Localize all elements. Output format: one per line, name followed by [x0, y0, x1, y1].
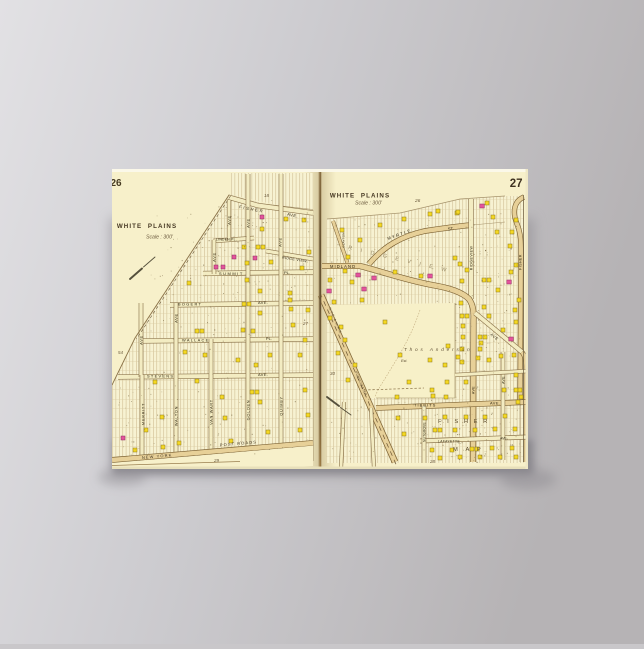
svg-text:29: 29 — [213, 458, 220, 463]
svg-text:LAFAYETTE: LAFAYETTE — [438, 440, 460, 444]
svg-text:STEVENS: STEVENS — [147, 374, 174, 379]
svg-text:AVE.: AVE. — [500, 437, 508, 441]
svg-text:MERRITT: MERRITT — [140, 403, 145, 425]
svg-text:WHITE PLAINS: WHITE PLAINS — [330, 193, 390, 200]
svg-text:PL.: PL. — [284, 270, 290, 275]
svg-text:54: 54 — [118, 350, 124, 355]
svg-text:AVE: AVE — [472, 386, 476, 394]
svg-text:T h o s A n d e r s o n: T h o s A n d e r s o n — [404, 347, 470, 352]
svg-text:MIDLAND: MIDLAND — [330, 264, 356, 269]
svg-text:LINDEN PL.: LINDEN PL. — [216, 238, 237, 242]
svg-text:Scale : 300′: Scale : 300′ — [355, 201, 383, 207]
svg-text:BOGERT: BOGERT — [178, 301, 202, 306]
svg-text:AVE: AVE — [278, 237, 283, 247]
svg-text:WALTON: WALTON — [173, 406, 178, 426]
svg-text:27: 27 — [302, 321, 309, 326]
svg-text:30: 30 — [330, 371, 336, 376]
svg-text:18: 18 — [264, 193, 270, 198]
svg-text:RIDGEVIEW: RIDGEVIEW — [470, 246, 474, 271]
svg-text:Scale : 300′: Scale : 300′ — [146, 235, 174, 241]
svg-text:AVE: AVE — [245, 218, 250, 228]
svg-text:AVE.: AVE. — [490, 401, 501, 406]
svg-text:AVE: AVE — [226, 215, 231, 225]
svg-text:AVE: AVE — [138, 335, 143, 345]
svg-text:26: 26 — [414, 198, 421, 204]
svg-text:AVE: AVE — [211, 252, 216, 262]
svg-text:WHITE PLAINS: WHITE PLAINS — [117, 223, 177, 230]
svg-text:AVE.: AVE. — [258, 300, 269, 305]
svg-text:M A P: M A P — [453, 447, 484, 453]
svg-text:26: 26 — [111, 178, 123, 189]
svg-text:TIBBITS: TIBBITS — [414, 403, 436, 408]
svg-text:VAN WART: VAN WART — [208, 399, 213, 425]
svg-text:ST.: ST. — [448, 226, 454, 232]
svg-text:28: 28 — [429, 459, 436, 464]
svg-text:F I S H E R: F I S H E R — [438, 419, 489, 425]
svg-text:FISHER: FISHER — [519, 254, 523, 270]
svg-text:PL.: PL. — [266, 336, 272, 341]
svg-text:Est.: Est. — [401, 359, 408, 363]
svg-text:27: 27 — [510, 178, 523, 190]
svg-text:SUMMIT: SUMMIT — [219, 271, 244, 276]
svg-text:AVE: AVE — [173, 313, 178, 323]
svg-text:NUTGROVE: NUTGROVE — [423, 422, 427, 442]
svg-text:GOLDEN: GOLDEN — [245, 400, 250, 421]
svg-text:AVE.: AVE. — [258, 372, 269, 377]
svg-text:WALLACE: WALLACE — [182, 337, 210, 342]
svg-text:QUIMBY: QUIMBY — [278, 396, 283, 416]
svg-text:CLAYTON: CLAYTON — [342, 232, 346, 247]
svg-text:AVE: AVE — [502, 376, 506, 384]
